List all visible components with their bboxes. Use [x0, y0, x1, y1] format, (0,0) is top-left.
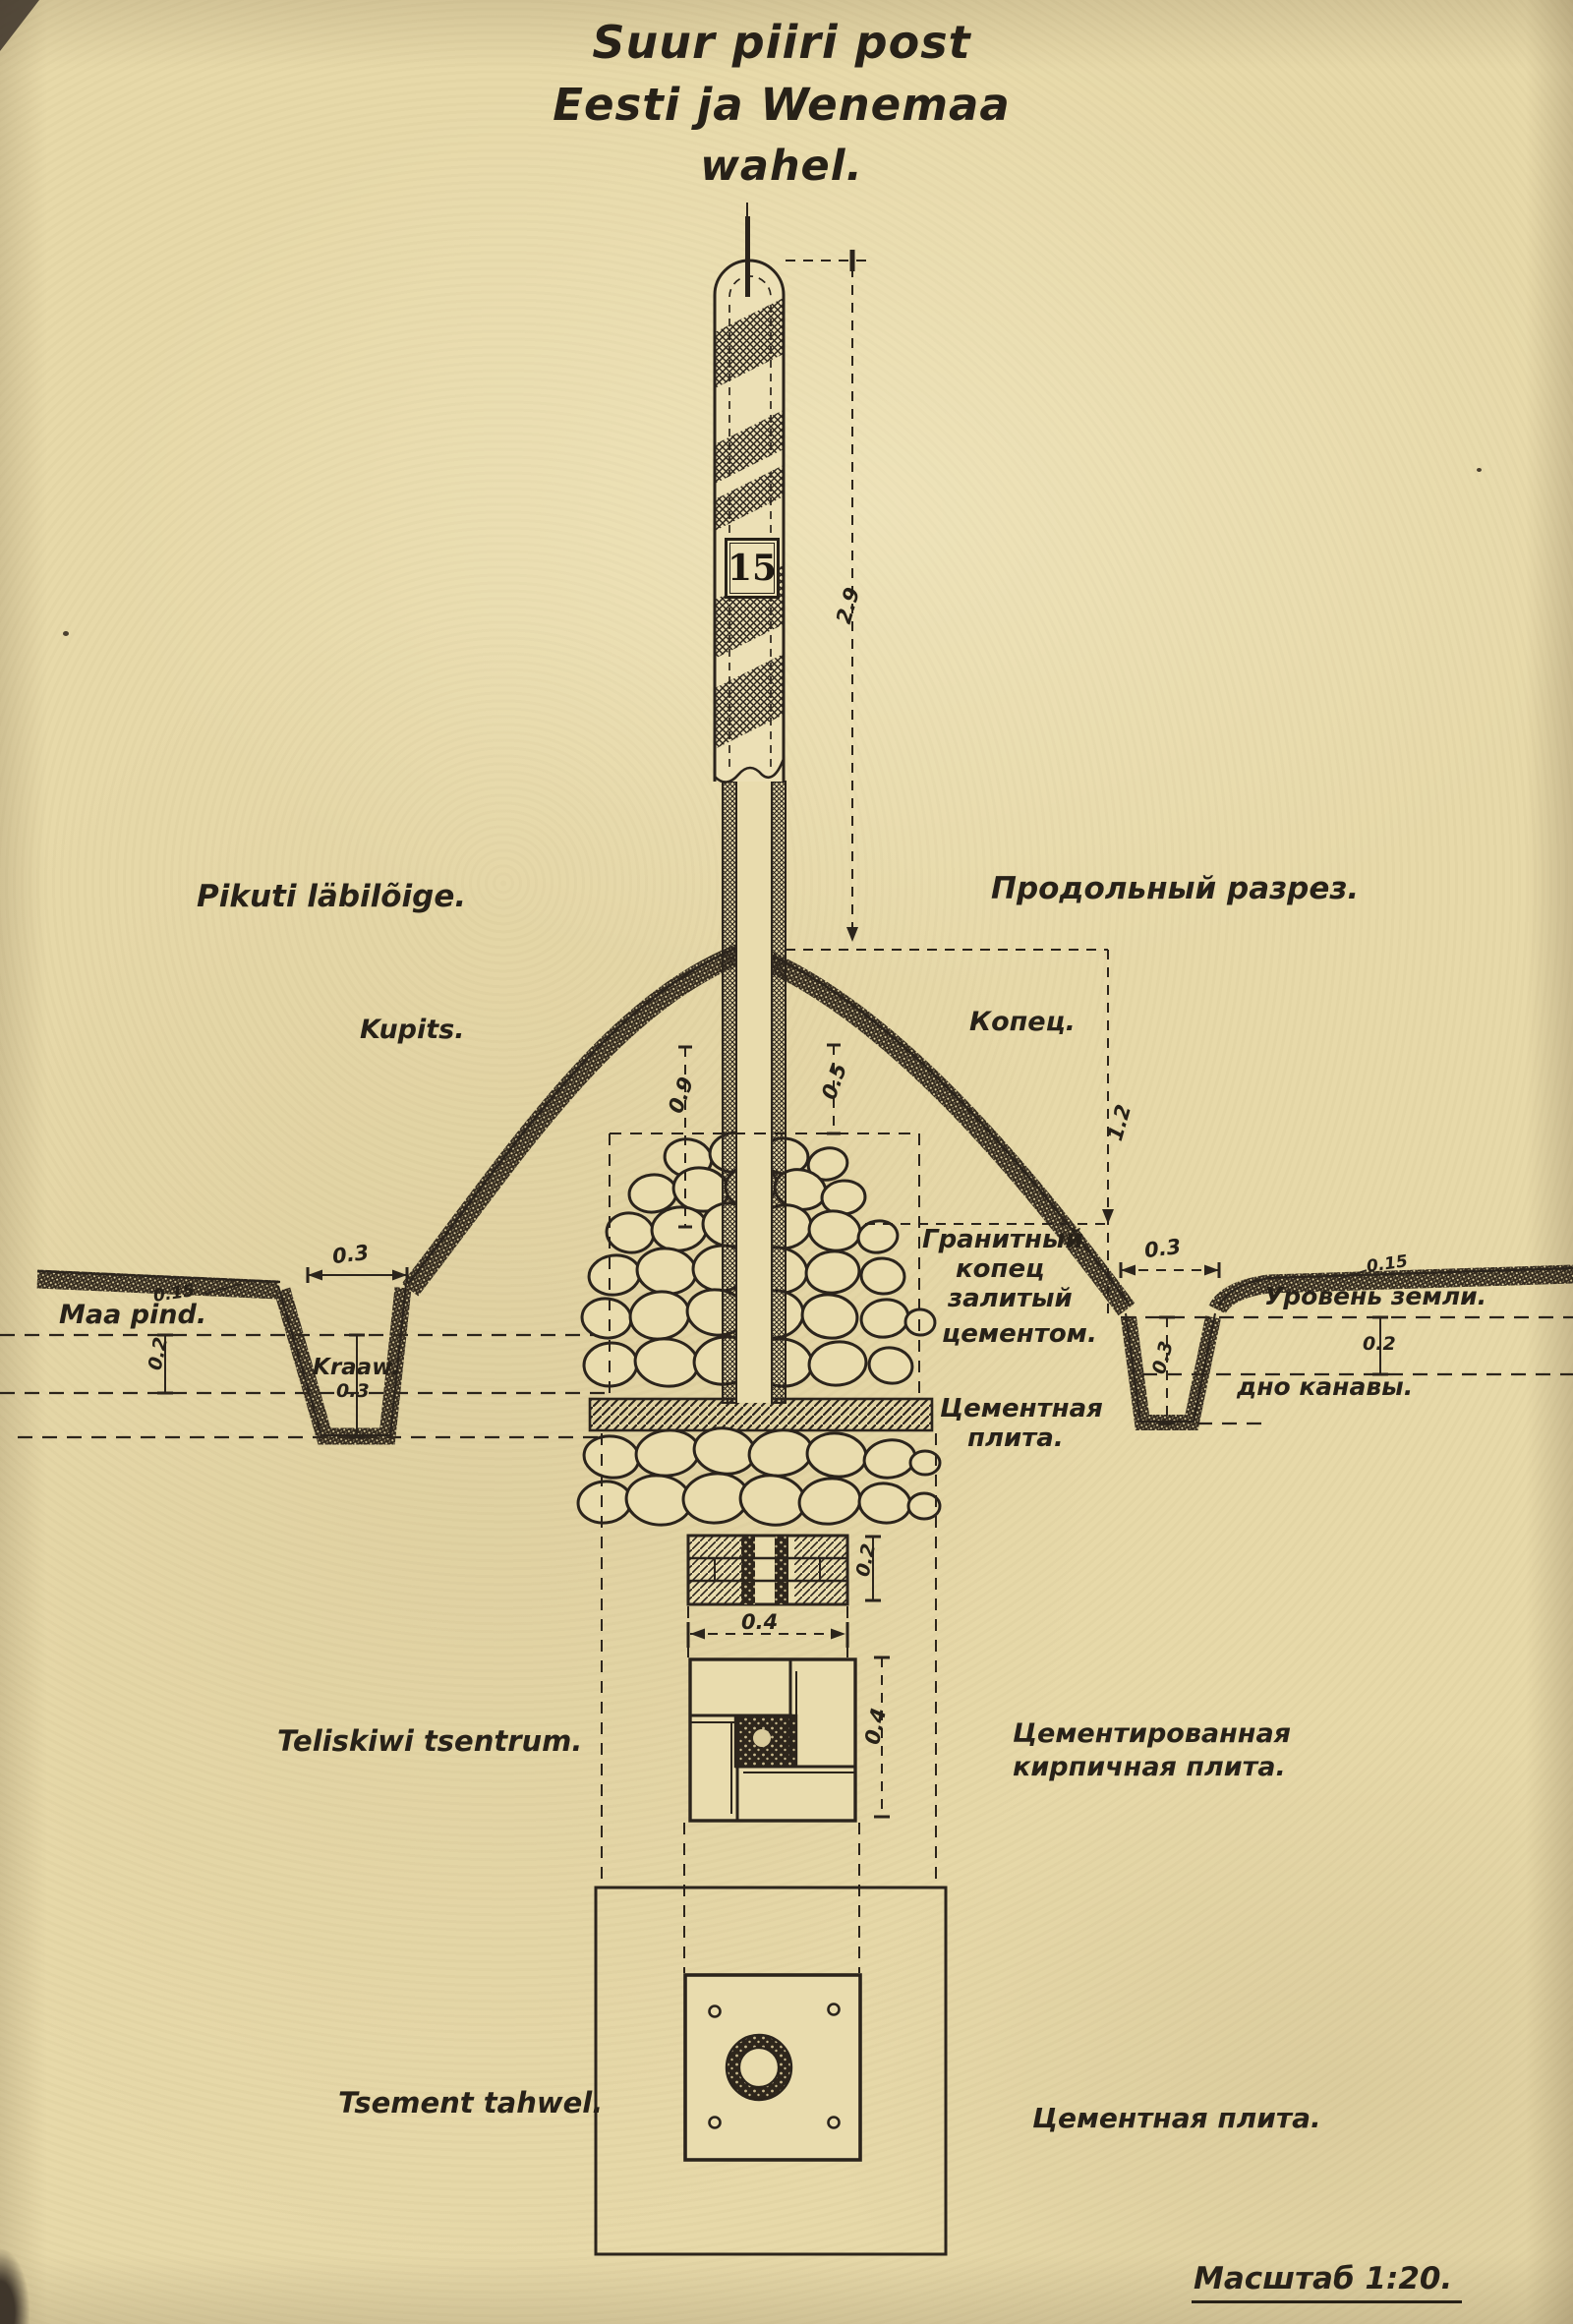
granite-core-label-l3: залитый — [948, 1284, 1073, 1313]
mound-label-estonian: Kupits. — [360, 1015, 464, 1045]
dim-brick-width: 0.4 — [741, 1610, 778, 1634]
cement-slab-label-russian: Цементная плита. — [1032, 2102, 1321, 2134]
title-line-2: Eesti ja Wenemaa — [541, 79, 1022, 131]
post-shaft-section — [723, 782, 786, 1403]
brick-plate-label-russian-l2: кирпичная плита. — [1013, 1752, 1286, 1782]
cement-slab-label-l2: плита. — [967, 1423, 1064, 1453]
granite-core-label-l4: цементом. — [942, 1319, 1097, 1349]
section-label-russian: Продольный разрез. — [991, 871, 1359, 906]
technical-drawing — [0, 0, 1573, 2324]
cement-board-plan — [596, 1888, 946, 2254]
cement-board-label-estonian: Tsement tahwel. — [338, 2086, 603, 2120]
dim-ditch-width-left: 0.3 — [331, 1241, 371, 1268]
brick-centre-block — [688, 1536, 847, 1604]
brick-plate-label-russian-l1: Цементированная — [1013, 1718, 1291, 1749]
granite-core-label-l1: Гранитный — [922, 1225, 1083, 1254]
ground-surface-label-estonian: Maa pind. — [59, 1300, 206, 1330]
stone-footing — [576, 1424, 940, 1529]
cement-slab — [590, 1399, 932, 1430]
granite-core-label-l2: копец — [956, 1254, 1044, 1284]
brick-centre-label-estonian: Teliskiwi tsentrum. — [277, 1724, 582, 1758]
post-number-plaque: 15 — [725, 538, 780, 599]
scanned-drawing-page: Suur piiri post Eesti ja Wenemaa wahel. … — [0, 0, 1573, 2324]
post-elevation — [715, 203, 784, 783]
title-line-1: Suur piiri post — [580, 16, 983, 69]
dim-subsoil-right: 0.2 — [1363, 1333, 1396, 1355]
title-line-3: wahel. — [649, 142, 914, 191]
dim-ditch-depth-left: 0.3 — [336, 1380, 370, 1402]
mound-label-russian: Копец. — [969, 1007, 1076, 1037]
section-label-estonian: Pikuti läbilõige. — [197, 879, 466, 914]
cement-slab-label-l1: Цементная — [940, 1394, 1103, 1423]
ditch-bottom-label-russian: дно канавы. — [1237, 1372, 1413, 1401]
ditch-label-estonian: Kraaw. — [313, 1355, 400, 1380]
scale-note: Масштаб 1:20. — [1192, 2261, 1462, 2303]
ground-level-label-russian: Уровень земли. — [1264, 1282, 1486, 1310]
post-spike — [745, 216, 750, 297]
post-number: 15 — [728, 548, 777, 589]
dim-ditch-width-right: 0.3 — [1143, 1235, 1183, 1262]
brick-plate-plan — [690, 1659, 855, 1821]
